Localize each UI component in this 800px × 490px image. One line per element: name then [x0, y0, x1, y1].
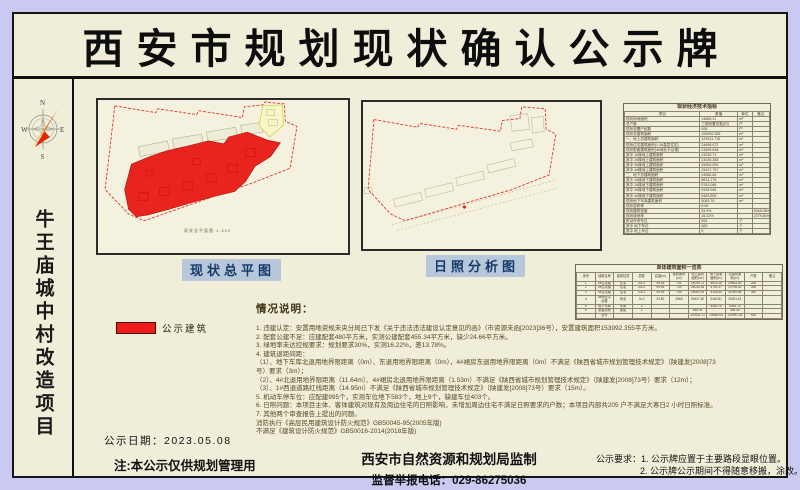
situation-lines: 1. 违建认定：安置用地资规未央分局已下发《关于违法违法建设认定意见的函》（市资…	[256, 325, 756, 437]
notice-board: 西安市规划现状确认公示牌 N W E S 牛王庙城中村改造项目	[12, 12, 788, 478]
publish-date: 公示日期：2023.05.08	[104, 433, 232, 448]
site-plan-drawing	[98, 100, 344, 249]
area-table-title: 单体建筑面积一览表	[576, 265, 782, 272]
situation-line: 6. 日照问题：本项目主体、客体建筑对现有及周边住宅的日照影响，未增加周边住宅不…	[256, 402, 756, 411]
report-hotline: 监督举报电话：029-86275036	[344, 472, 554, 488]
situation-line: 3. 绿地率未达控规要求：规划要求30%，实测16.22%，差13.78%。	[256, 342, 756, 351]
situation-line: （3）、1#西退道路红线距离（14.95m）不满足《陕西省城市规划管理技术规定》…	[256, 385, 756, 394]
posting-requirements: 公示要求：1. 公示牌应置于主要路段显眼位置。 2. 公示牌公示期间不得随意移搬…	[596, 453, 786, 477]
title-band: 西安市规划现状确认公示牌	[14, 14, 786, 79]
compass-icon: N W E S	[20, 97, 66, 161]
situation-line: 7. 其他两个审查报告上提出的问题。	[256, 411, 756, 420]
sunlight-drawing	[363, 102, 596, 245]
site-plan-inner-caption: 现状总平面图 1:500	[184, 228, 231, 234]
site-plan-panel: 现状总平面图 1:500	[96, 98, 350, 255]
svg-text:E: E	[60, 126, 64, 134]
sunlight-panel	[361, 100, 602, 251]
authority-block: 西安市自然资源和规划局监制 监督举报电话：029-86275036	[344, 448, 554, 488]
indicator-table: 现状经济技术指标 项目数值单位备注现状用地面积14665.11m²总户数三期安置…	[623, 103, 771, 235]
situation-line: 1. 违建认定：安置用地资规未央分局已下发《关于违法违法建设认定意见的函》（市资…	[256, 325, 756, 334]
sunlight-site-boundary	[368, 107, 556, 221]
legend-label: 公示建筑	[162, 321, 208, 335]
legend-swatch-publicized-building	[116, 322, 156, 334]
situation-block: 情况说明： 1. 违建认定：安置用地资规未央分局已下发《关于违法违法建设认定意见…	[256, 301, 756, 437]
requirement-line: 公示要求：1. 公示牌应置于主要路段显眼位置。	[596, 453, 786, 465]
page-title: 西安市规划现状确认公示牌	[70, 15, 731, 75]
situation-line: 2. 配套公建不足：应建配套480平方米，实测公建配套455.34平方米，缺少2…	[256, 334, 756, 343]
svg-text:N: N	[40, 99, 45, 107]
sunlight-plan-label: 日照分析图	[426, 255, 525, 277]
svg-text:W: W	[21, 126, 28, 134]
situation-line: 号）要求（3m）；	[256, 368, 756, 377]
authority-name: 西安市自然资源和规划局监制	[344, 448, 554, 468]
requirement-line: 2. 公示牌公示期间不得随意移搬，涂改。	[596, 465, 786, 477]
svg-text:S: S	[41, 153, 45, 161]
main-area: 现状总平面图 1:500 现状总平图	[74, 79, 786, 476]
situation-line: （2）、4#北退用地界限距离（11.64m）、4#裙房北退用地界限距离（1.53…	[256, 377, 756, 386]
sidebar: N W E S 牛王庙城中村改造项目	[14, 79, 74, 476]
project-name: 牛王庙城中村改造项目	[14, 179, 72, 469]
site-plan-label: 现状总平图	[182, 259, 281, 281]
indicator-table-title: 现状经济技术指标	[624, 104, 770, 111]
situation-line: 不满足《建筑设计防火规范》GB50016-2014(2018年版)	[256, 428, 756, 437]
usage-note: 注:本公示仅供规划管理用	[114, 455, 256, 474]
situation-heading: 情况说明：	[256, 301, 756, 316]
situation-line: （1）、地下车库北退用地界限距离（0m）、东退用地界限距离（0m），4#裙房东退…	[256, 359, 756, 368]
situation-line: 消防执行《高层民用建筑设计防火规范》GB50045-95(2005年版)	[256, 420, 756, 429]
